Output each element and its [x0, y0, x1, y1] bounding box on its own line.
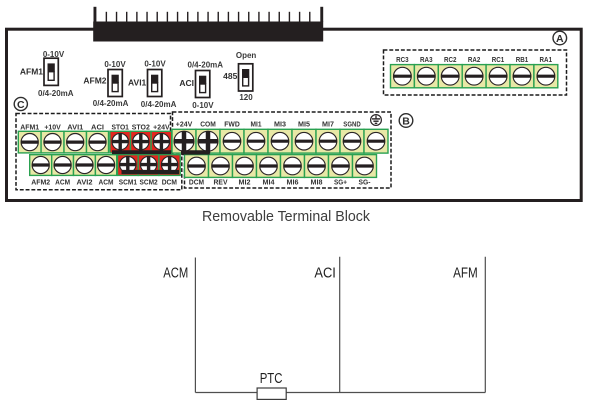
- svg-text:MI2: MI2: [239, 177, 251, 186]
- svg-text:0-10V: 0-10V: [104, 60, 126, 69]
- svg-text:AFM: AFM: [453, 264, 478, 281]
- svg-text:MI6: MI6: [287, 177, 299, 186]
- svg-text:ACM: ACM: [55, 177, 70, 186]
- svg-text:DCM: DCM: [189, 177, 204, 186]
- svg-text:MI1: MI1: [251, 120, 262, 129]
- svg-text:+24V: +24V: [153, 122, 170, 131]
- svg-text:DCM: DCM: [162, 177, 177, 186]
- svg-text:MI3: MI3: [274, 120, 286, 129]
- svg-text:+24V: +24V: [176, 120, 193, 129]
- svg-text:AVI1: AVI1: [67, 122, 83, 131]
- svg-text:B: B: [402, 115, 410, 127]
- svg-text:0/4-20mA: 0/4-20mA: [93, 99, 129, 108]
- svg-text:RA1: RA1: [540, 55, 553, 64]
- svg-text:C: C: [17, 99, 25, 111]
- svg-text:RA2: RA2: [468, 55, 481, 64]
- svg-text:0/4-20mA: 0/4-20mA: [141, 100, 177, 109]
- svg-text:STO2: STO2: [132, 122, 150, 131]
- svg-text:MI5: MI5: [298, 120, 310, 129]
- svg-text:MI8: MI8: [311, 177, 323, 186]
- svg-text:ACI: ACI: [314, 264, 336, 281]
- svg-text:RC1: RC1: [492, 55, 505, 64]
- svg-text:+10V: +10V: [44, 122, 61, 131]
- svg-text:0-10V: 0-10V: [144, 60, 166, 69]
- svg-text:AFM1: AFM1: [20, 67, 43, 77]
- svg-text:RA3: RA3: [420, 55, 433, 64]
- svg-text:Removable Terminal Block: Removable Terminal Block: [202, 208, 370, 225]
- svg-text:SG+: SG+: [334, 177, 348, 186]
- svg-text:AVI2: AVI2: [77, 177, 93, 186]
- svg-text:0/4-20mA: 0/4-20mA: [38, 89, 74, 98]
- svg-text:ACI: ACI: [179, 78, 194, 88]
- svg-text:ACM: ACM: [99, 177, 114, 186]
- svg-text:AFM2: AFM2: [83, 76, 106, 86]
- svg-text:COM: COM: [200, 120, 216, 129]
- svg-text:MI7: MI7: [322, 120, 334, 129]
- svg-text:SG-: SG-: [359, 177, 371, 186]
- svg-text:PTC: PTC: [260, 370, 283, 387]
- svg-text:AVI1: AVI1: [128, 78, 147, 88]
- svg-text:SCM2: SCM2: [140, 177, 158, 186]
- svg-text:485: 485: [223, 71, 237, 81]
- svg-text:AFM2: AFM2: [31, 177, 50, 186]
- svg-text:SGND: SGND: [343, 120, 361, 129]
- svg-text:ACM: ACM: [163, 264, 188, 281]
- svg-text:FWD: FWD: [224, 120, 240, 129]
- svg-text:ACI: ACI: [91, 122, 104, 131]
- svg-text:0/4-20mA: 0/4-20mA: [188, 61, 224, 70]
- svg-text:AFM1: AFM1: [20, 122, 39, 131]
- svg-text:RB1: RB1: [516, 55, 529, 64]
- svg-text:RC3: RC3: [396, 55, 409, 64]
- svg-text:0-10V: 0-10V: [192, 101, 214, 110]
- svg-text:Open: Open: [236, 51, 257, 60]
- svg-text:RC2: RC2: [444, 55, 457, 64]
- svg-text:REV: REV: [214, 177, 228, 186]
- svg-text:STO1: STO1: [111, 122, 129, 131]
- svg-text:A: A: [556, 33, 564, 45]
- svg-text:MI4: MI4: [263, 177, 276, 186]
- svg-text:120: 120: [239, 93, 253, 102]
- svg-text:SCM1: SCM1: [119, 177, 137, 186]
